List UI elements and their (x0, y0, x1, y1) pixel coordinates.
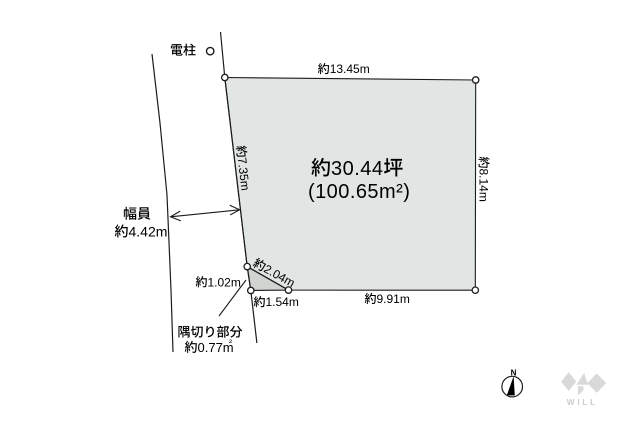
svg-text:1.02m: 1.02m (208, 275, 241, 289)
svg-text:²: ² (229, 338, 232, 348)
svg-text:4.42m: 4.42m (129, 223, 168, 239)
svg-text:WILL: WILL (567, 398, 598, 407)
svg-text:30.44: 30.44 (331, 158, 384, 180)
svg-text:N: N (511, 369, 517, 378)
svg-text:(100.65m²): (100.65m²) (308, 181, 410, 203)
svg-text:9.91m: 9.91m (377, 292, 410, 306)
svg-text:8.14m: 8.14m (477, 169, 491, 202)
svg-text:13.45m: 13.45m (330, 62, 370, 76)
svg-text:1.54m: 1.54m (266, 295, 299, 309)
